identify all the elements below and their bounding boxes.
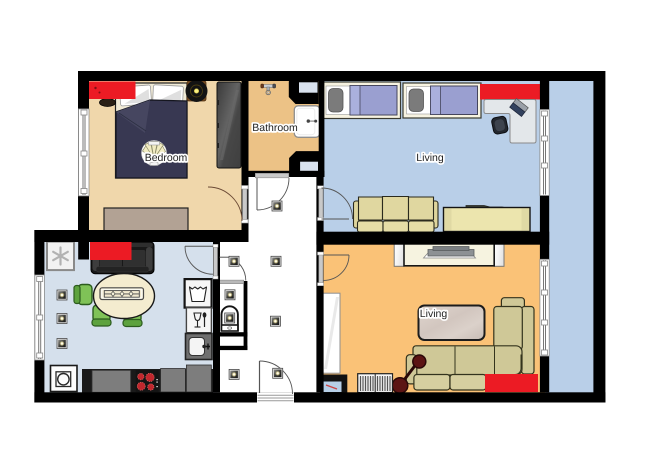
svg-text:Living: Living [416,152,444,164]
svg-text:Bathroom: Bathroom [252,122,298,134]
svg-text:Living: Living [420,308,448,320]
svg-text:Bedroom: Bedroom [145,152,188,164]
